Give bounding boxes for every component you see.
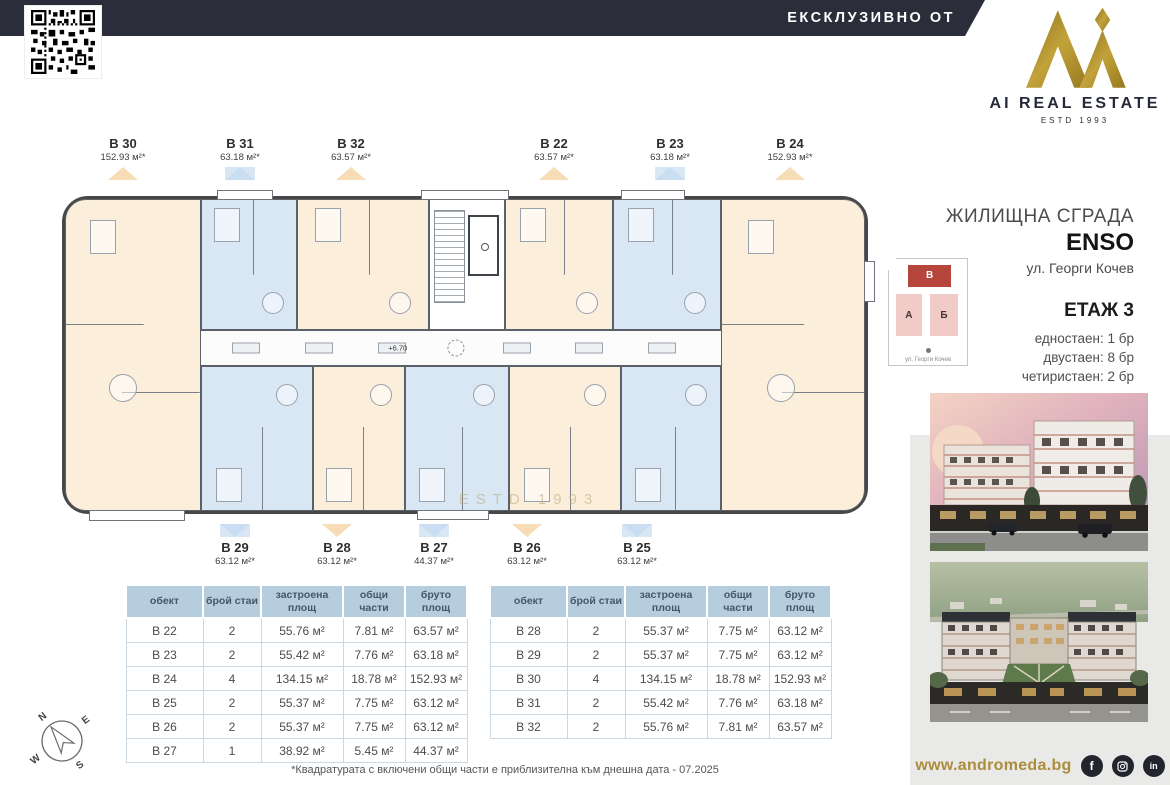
table-cell: 55.37 м² [625,643,707,667]
linkedin-icon[interactable]: in [1143,755,1165,777]
header-bar: ЕКСКЛУЗИВНО ОТ [0,0,985,36]
table-cell: 63.18 м² [405,643,467,667]
table-row: B 25255.37 м²7.75 м²63.12 м² [126,691,467,715]
table-cell: 7.81 м² [343,618,405,643]
compass-w: W [29,752,43,766]
table-row: B 26255.37 м²7.75 м²63.12 м² [126,715,467,739]
table-cell: 2 [567,715,625,739]
watermark-estd: ESTD 1993 [459,491,600,508]
unit-marker-icon [220,524,250,537]
table-cell: 2 [567,618,625,643]
table-cell: 2 [203,715,261,739]
table-cell: 1 [203,739,261,763]
table-header-row: обект брой стаи застроена площ общи част… [490,585,831,618]
unit-id: B 23 [622,137,718,151]
table-header-cell: застроена площ [625,585,707,618]
unit-id: B 28 [289,541,385,555]
apartment-b26 [509,366,621,511]
unit-marker-icon [622,524,652,537]
unit-area: 63.18 м²* [192,152,288,163]
table-cell: B 24 [126,667,203,691]
unit-label-b29: B 29 63.12 м²* [187,524,283,567]
unit-label-b31: B 31 63.18 м²* [192,137,288,180]
unit-marker-icon [419,524,449,537]
unit-label-b22: B 22 63.57 м²* [506,137,602,180]
unit-entrance-tag [232,342,260,353]
unit-mix-line: четиристаен: 2 бр [880,367,1134,386]
unit-label-b30: B 30 152.93 м²* [75,137,171,180]
table-row: B 23255.42 м²7.76 м²63.18 м² [126,643,467,667]
table-header-cell: общи части [343,585,405,618]
unit-marker-icon [225,167,255,180]
unit-id: B 24 [742,137,838,151]
table-header-cell: бруто площ [769,585,831,618]
table-header-cell: брой стаи [567,585,625,618]
unit-entrance-tag [648,342,676,353]
table-cell: B 25 [126,691,203,715]
exclusive-label: ЕКСКЛУЗИВНО ОТ [787,0,955,36]
site-block-b: Б [930,294,959,336]
table-cell: B 22 [126,618,203,643]
table-cell: 7.75 м² [343,691,405,715]
table-cell: B 32 [490,715,567,739]
table-cell: 63.57 м² [405,618,467,643]
instagram-icon[interactable] [1112,755,1134,777]
compass-s: S [74,759,86,772]
table-cell: B 28 [490,618,567,643]
unit-marker-icon [655,167,685,180]
brand-estd: ESTD 1993 [980,116,1170,125]
table-header-cell: обект [126,585,203,618]
table-cell: 63.12 м² [405,715,467,739]
balcony [864,261,875,302]
stair-elevator-core [429,199,505,330]
brand-logo-icon [1019,6,1131,92]
unit-area: 63.18 м²* [622,152,718,163]
accessibility-icon [447,339,464,356]
table-header-cell: обект [490,585,567,618]
building-photo-aerial-image [930,562,1148,722]
balcony [621,190,685,200]
qr-code [25,6,101,78]
table-cell: 4 [203,667,261,691]
apartment-b27 [405,366,509,511]
table-row: B 304134.15 м²18.78 м²152.93 м² [490,667,831,691]
site-block-v: В [908,265,952,286]
stairs [434,210,466,302]
area-table-left: обект брой стаи застроена площ общи част… [125,584,468,763]
unit-id: B 29 [187,541,283,555]
table-row: B 29255.37 м²7.75 м²63.12 м² [490,643,831,667]
brand-name: AI REAL ESTATE [980,95,1170,113]
table-cell: 5.45 м² [343,739,405,763]
area-table-right: обект брой стаи застроена площ общи част… [489,584,832,739]
unit-area: 63.12 м²* [479,556,575,567]
building-photo-aerial [930,562,1148,722]
project-name: ENSO [880,229,1134,257]
table-cell: 7.76 м² [707,691,769,715]
unit-area: 63.57 м²* [506,152,602,163]
table-cell: 38.92 м² [261,739,343,763]
unit-area: 152.93 м²* [742,152,838,163]
table-cell: 55.37 м² [261,715,343,739]
brand-logo: AI REAL ESTATE ESTD 1993 [980,4,1170,125]
table-cell: B 29 [490,643,567,667]
apartment-b30 [65,199,201,511]
unit-id: B 22 [506,137,602,151]
table-cell: 55.76 м² [625,715,707,739]
balcony [421,190,509,200]
table-cell: 2 [203,643,261,667]
table-cell: 63.18 м² [769,691,831,715]
site-street-label: ул. Георги Кочев [889,357,967,363]
building-type: ЖИЛИЩНА СГРАДА [880,206,1134,228]
table-cell: 18.78 м² [343,667,405,691]
table-cell: 7.75 м² [707,618,769,643]
table-header-cell: брой стаи [203,585,261,618]
unit-label-b25: B 25 63.12 м²* [589,524,685,567]
unit-id: B 25 [589,541,685,555]
qr-code-icon [29,10,97,74]
unit-label-b24: B 24 152.93 м²* [742,137,838,180]
table-header-row: обект брой стаи застроена площ общи част… [126,585,467,618]
table-cell: B 30 [490,667,567,691]
tree-icon [926,348,931,353]
table-cell: 152.93 м² [405,667,467,691]
unit-marker-icon [775,167,805,180]
apartment-b22 [505,199,613,330]
floor-plan: +6.70 ESTD 1993 [62,196,868,514]
table-row: B 28255.37 м²7.75 м²63.12 м² [490,618,831,643]
apartment-b29 [201,366,313,511]
building-photo-sunset-image [930,393,1148,551]
table-cell: 152.93 м² [769,667,831,691]
table-cell: 2 [203,618,261,643]
balcony [89,510,185,521]
unit-id: B 30 [75,137,171,151]
apartment-b23 [613,199,721,330]
apartment-b28 [313,366,405,511]
unit-area: 152.93 м²* [75,152,171,163]
compass: N E S W [20,714,104,780]
table-cell: 7.76 м² [343,643,405,667]
level-mark: +6.70 [388,343,407,352]
table-cell: 2 [203,691,261,715]
balcony [217,190,273,200]
unit-id: B 32 [303,137,399,151]
unit-entrance-tag [305,342,333,353]
table-cell: 55.37 м² [625,618,707,643]
compass-e: E [80,714,92,727]
table-cell: 134.15 м² [625,667,707,691]
apartment-b32 [297,199,429,330]
unit-marker-icon [512,524,542,537]
unit-label-b28: B 28 63.12 м²* [289,524,385,567]
table-cell: 2 [567,643,625,667]
table-cell: 63.12 м² [405,691,467,715]
table-cell: B 27 [126,739,203,763]
website-link[interactable]: www.andromeda.bg [915,757,1071,775]
unit-id: B 31 [192,137,288,151]
unit-area: 63.12 м²* [187,556,283,567]
unit-label-b32: B 32 63.57 м²* [303,137,399,180]
table-header-cell: бруто площ [405,585,467,618]
table-row: B 244134.15 м²18.78 м²152.93 м² [126,667,467,691]
footnote: *Квадратурата с включени общи части е пр… [140,764,870,776]
table-cell: 55.42 м² [261,643,343,667]
table-cell: 55.76 м² [261,618,343,643]
unit-marker-icon [108,167,138,180]
table-cell: 7.81 м² [707,715,769,739]
table-cell: 18.78 м² [707,667,769,691]
table-cell: 134.15 м² [261,667,343,691]
table-row: B 32255.76 м²7.81 м²63.57 м² [490,715,831,739]
table-row: B 31255.42 м²7.76 м²63.18 м² [490,691,831,715]
table-row: B 27138.92 м²5.45 м²44.37 м² [126,739,467,763]
unit-label-b27: B 27 44.37 м²* [386,524,482,567]
apartment-b24 [721,199,865,511]
apartment-b31 [201,199,297,330]
unit-marker-icon [322,524,352,537]
facebook-icon[interactable]: f [1081,755,1103,777]
table-cell: 55.42 м² [625,691,707,715]
unit-area: 63.12 м²* [289,556,385,567]
unit-area: 63.57 м²* [303,152,399,163]
table-cell: B 26 [126,715,203,739]
unit-label-b23: B 23 63.18 м²* [622,137,718,180]
site-plan-diagram: В А Б ул. Георги Кочев [888,258,968,366]
table-cell: 63.12 м² [769,618,831,643]
footer: www.andromeda.bg f in [910,750,1170,782]
unit-id: B 27 [386,541,482,555]
table-cell: B 31 [490,691,567,715]
table-row: B 22255.76 м²7.81 м²63.57 м² [126,618,467,643]
unit-entrance-tag [503,342,531,353]
unit-marker-icon [336,167,366,180]
table-cell: 63.57 м² [769,715,831,739]
brochure-page: ЕКСКЛУЗИВНО ОТ [0,0,1170,785]
table-cell: 44.37 м² [405,739,467,763]
table-header-cell: общи части [707,585,769,618]
elevator [468,215,499,276]
unit-marker-icon [539,167,569,180]
table-cell: 2 [567,691,625,715]
site-block-a: А [896,294,922,336]
table-cell: 55.37 м² [261,691,343,715]
unit-entrance-tag [575,342,603,353]
unit-label-b26: B 26 63.12 м²* [479,524,575,567]
table-cell: 7.75 м² [343,715,405,739]
unit-area: 63.12 м²* [589,556,685,567]
balcony [417,510,489,520]
table-cell: 7.75 м² [707,643,769,667]
unit-id: B 26 [479,541,575,555]
unit-area: 44.37 м²* [386,556,482,567]
apartment-b25 [621,366,721,511]
table-header-cell: застроена площ [261,585,343,618]
corridor: +6.70 [201,330,721,366]
table-cell: 63.12 м² [769,643,831,667]
compass-rose-icon: N E S W [30,709,95,774]
table-cell: B 23 [126,643,203,667]
table-cell: 4 [567,667,625,691]
building-photo-sunset [930,393,1148,551]
